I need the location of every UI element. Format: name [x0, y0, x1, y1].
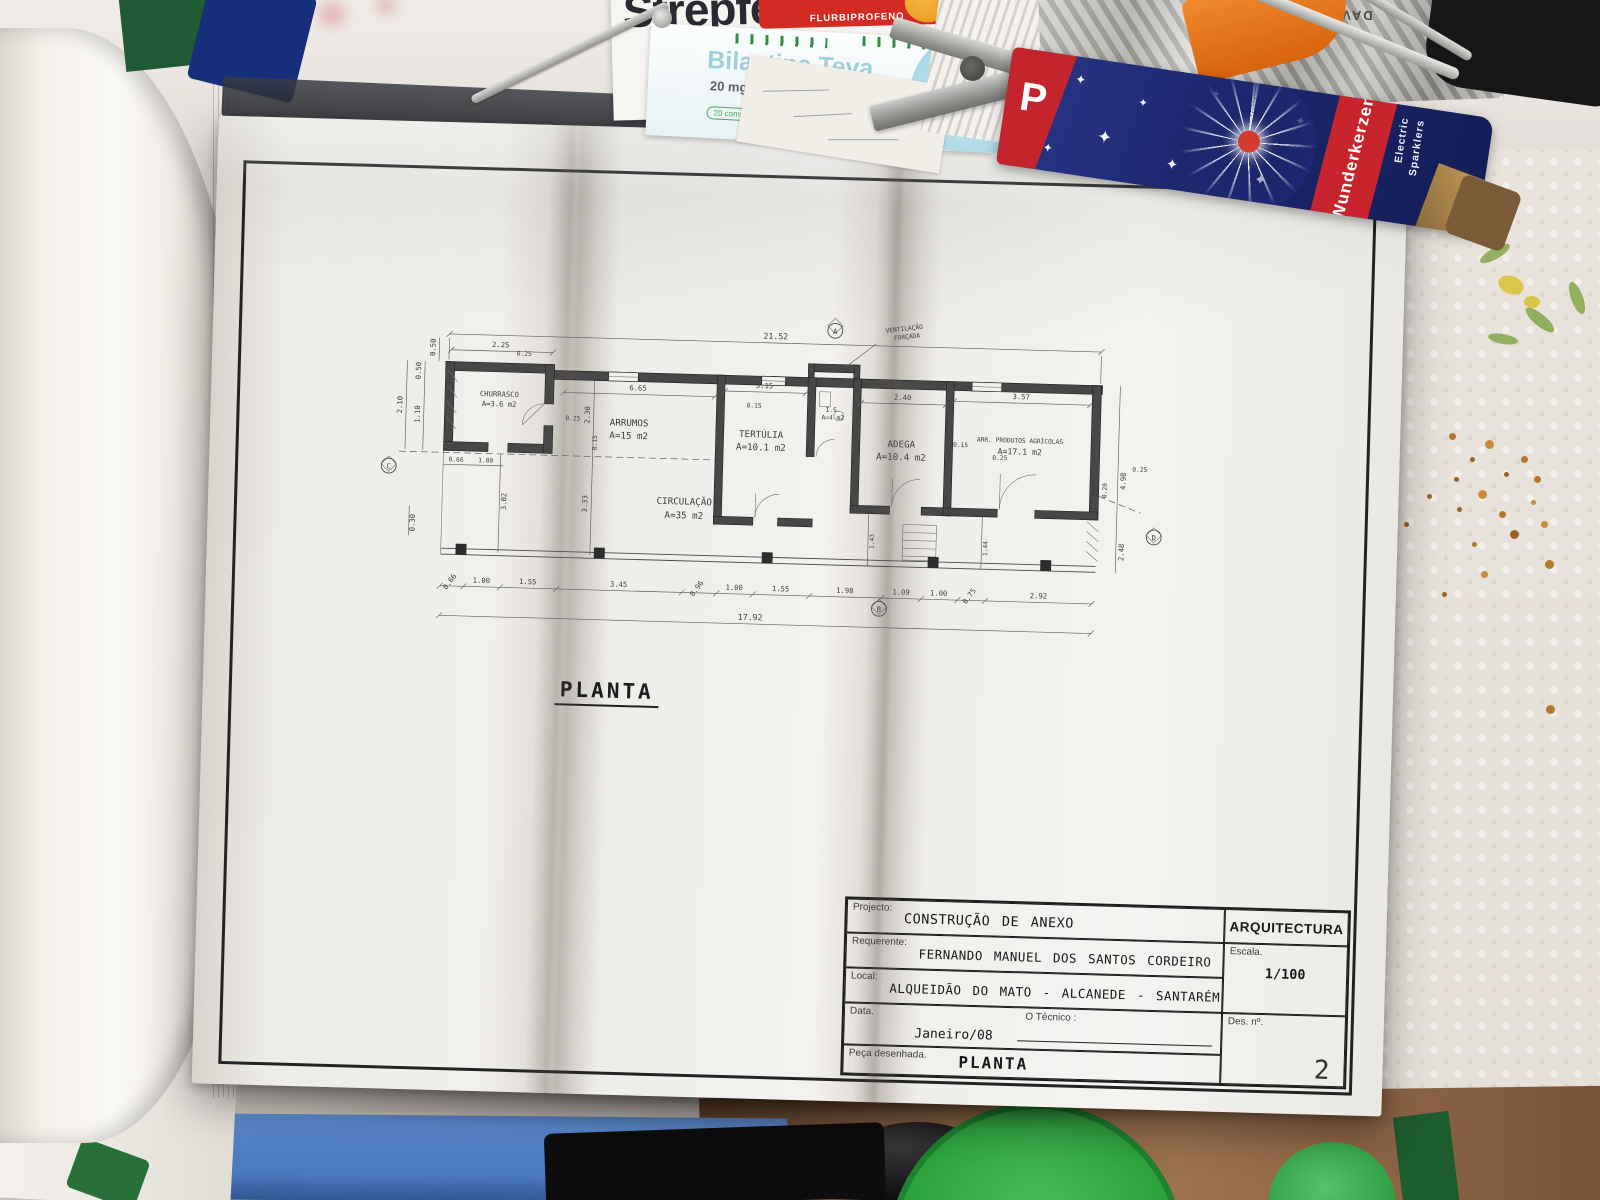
brand-band: Wunderkerzen — [1308, 88, 1399, 227]
scissors-pivot — [960, 56, 985, 81]
location-label: Local: — [851, 971, 878, 983]
plan-title: PLANTA — [554, 677, 659, 708]
dim-wall-1c: 0.15 — [592, 435, 599, 450]
location-value: ALQUEIDÃO DO MATO - ALCANEDE - SANTARÉM — [889, 981, 1220, 1005]
star-icon — [1164, 155, 1179, 175]
plan-section-markers: A B C D — [377, 306, 1167, 624]
dim-chain-2: 1.55 — [519, 577, 537, 586]
dim-chain-6: 1.55 — [772, 584, 790, 593]
marker-d: D — [1151, 533, 1156, 542]
dim-chain-9: 1.00 — [930, 588, 948, 597]
dim-tertulia-w: 3.15 — [756, 381, 774, 390]
floor-plan: CHURRASCO A=3.6 m2 ARRUMOS A=15 m2 TERTÚ… — [354, 300, 1194, 683]
drawing-no-label: Des. nº. — [1228, 1016, 1264, 1028]
marker-b: B — [877, 605, 882, 614]
room-adega-name: ADEGA — [887, 439, 915, 451]
dim-right-1: 2.48 — [1116, 544, 1125, 562]
room-tertulia-area: A=10.1 m2 — [736, 442, 786, 454]
dim-arrumos-w: 6.65 — [629, 383, 647, 392]
dim-wall-2: 0.20 — [1101, 483, 1108, 498]
marker-a: A — [833, 327, 838, 336]
dim-chain-5: 1.00 — [725, 583, 743, 592]
dim-wall-0d: 0.25 — [1132, 467, 1147, 474]
discipline-box: ARQUITECTURA — [1224, 909, 1349, 946]
room-arrumos-area: A=15 m2 — [609, 430, 648, 442]
dim-left-4: 0.66 — [448, 456, 463, 463]
note-ventilacao-2: FORÇADA — [894, 332, 921, 342]
client-value: FERNANDO MANUEL DOS SANTOS CORDEIRO — [918, 946, 1211, 969]
dim-left-1: 2.10 — [395, 396, 404, 414]
dim-chain-1: 1.00 — [473, 576, 491, 585]
dim-left-5: 1.00 — [478, 457, 493, 464]
green-tick-marks — [735, 33, 827, 48]
dim-left-3: 1.10 — [413, 405, 422, 423]
title-block: Projecto: CONSTRUÇÃO DE ANEXO ARQUITECTU… — [840, 896, 1351, 1089]
dim-top-total: 21.52 — [763, 331, 788, 342]
project-label: Projecto: — [853, 902, 893, 914]
marker-c: C — [386, 462, 391, 471]
embroidered-flower — [1524, 296, 1540, 308]
dim-chain-3: 3.45 — [610, 579, 628, 588]
sparkler-brand: Wunderkerzen — [1328, 93, 1380, 221]
date-label: Data. — [850, 1006, 874, 1018]
dim-left-9: 2.30 — [583, 406, 592, 424]
plan-colonnade — [396, 449, 1142, 573]
plan-fixtures — [443, 369, 1103, 565]
dim-left-7: 3.02 — [499, 493, 508, 511]
dim-left-0: 0.50 — [428, 338, 437, 356]
dim-wall-0b: 0.25 — [565, 415, 580, 422]
room-arrumos-name: ARRUMOS — [610, 417, 649, 429]
room-churrasco-area: A=3.6 m2 — [482, 399, 517, 409]
room-is-area: A=4 m2 — [822, 414, 845, 422]
small-green-lid — [1268, 1142, 1396, 1200]
dim-wall-1a: 0.15 — [747, 402, 762, 409]
star-icon — [1138, 96, 1149, 110]
dim-chain-8: 1.09 — [892, 587, 910, 596]
dim-chain-7: 1.98 — [836, 586, 854, 595]
piece-value: PLANTA — [958, 1053, 1028, 1074]
dim-right-0: 4.98 — [1118, 472, 1127, 490]
drawing-number-box: Des. nº. 2 — [1220, 1013, 1346, 1087]
dim-chain-4: 0.96 — [688, 579, 706, 598]
dim-inner-0: 1.43 — [869, 534, 876, 549]
room-adega-area: A=10.4 m2 — [876, 451, 926, 463]
scale-label: Escala. — [1230, 946, 1263, 958]
room-arrprod-name: ARR. PRODUTOS AGRÍCOLAS — [977, 435, 1064, 446]
room-tertulia-name: TERTÚLIA — [739, 428, 784, 441]
photo-scene: CHURRASCO A=3.6 m2 ARRUMOS A=15 m2 TERTÚ… — [0, 0, 1600, 1200]
project-value: CONSTRUÇÃO DE ANEXO — [904, 911, 1074, 932]
dim-wall-0a: 0.25 — [517, 351, 532, 358]
dim-inner-1: 1.44 — [982, 541, 989, 556]
strepfen-substance: FLURBIPROFENO — [810, 11, 905, 24]
star-icon — [1042, 140, 1054, 155]
technician-label: O Técnico : — [1025, 1011, 1076, 1023]
dim-chain-0: 0.66 — [441, 572, 459, 591]
dim-left-6: 0.30 — [408, 514, 417, 532]
dim-adega-w: 2.40 — [894, 393, 912, 402]
dim-wall-0c: 0.25 — [992, 455, 1007, 462]
star-icon — [1074, 72, 1087, 88]
dim-chain-11: 2.92 — [1030, 591, 1048, 600]
signature-line — [1017, 1040, 1212, 1046]
dim-arrprod-w: 3.57 — [1012, 392, 1030, 401]
metal-rod-knob — [652, 8, 672, 28]
dim-chain-10: 0.75 — [960, 586, 978, 605]
drawing-no-value: 2 — [1313, 1056, 1329, 1086]
room-circulacao-area: A=35 m2 — [664, 510, 703, 522]
room-is-name: I.S. — [825, 407, 840, 414]
dim-left-8: 3.33 — [580, 495, 589, 513]
dim-churrasco-w: 2.25 — [492, 340, 510, 349]
client-label: Requerente: — [852, 936, 907, 949]
plan-doors — [520, 403, 1038, 525]
piece-label: Peça desenhada. — [849, 1048, 927, 1061]
cloth-pattern-dot — [318, 2, 346, 26]
black-object — [544, 1122, 886, 1200]
dim-wall-1b: 0.15 — [953, 442, 968, 449]
star-icon — [1095, 126, 1113, 149]
date-value: Janeiro/08 — [914, 1026, 993, 1043]
dim-left-2: 0.50 — [414, 362, 423, 380]
drawing-sheet: CHURRASCO A=3.6 m2 ARRUMOS A=15 m2 TERTÚ… — [192, 116, 1409, 1117]
plan-dimension-lines — [400, 330, 1121, 637]
room-churrasco-name: CHURRASCO — [480, 389, 519, 399]
dim-bottom-total: 17.92 — [738, 612, 763, 623]
scale-value: 1/100 — [1265, 966, 1306, 983]
room-circulacao-name: CIRCULAÇÃO — [656, 496, 712, 509]
scale-box: Escala. 1/100 — [1222, 943, 1348, 1016]
